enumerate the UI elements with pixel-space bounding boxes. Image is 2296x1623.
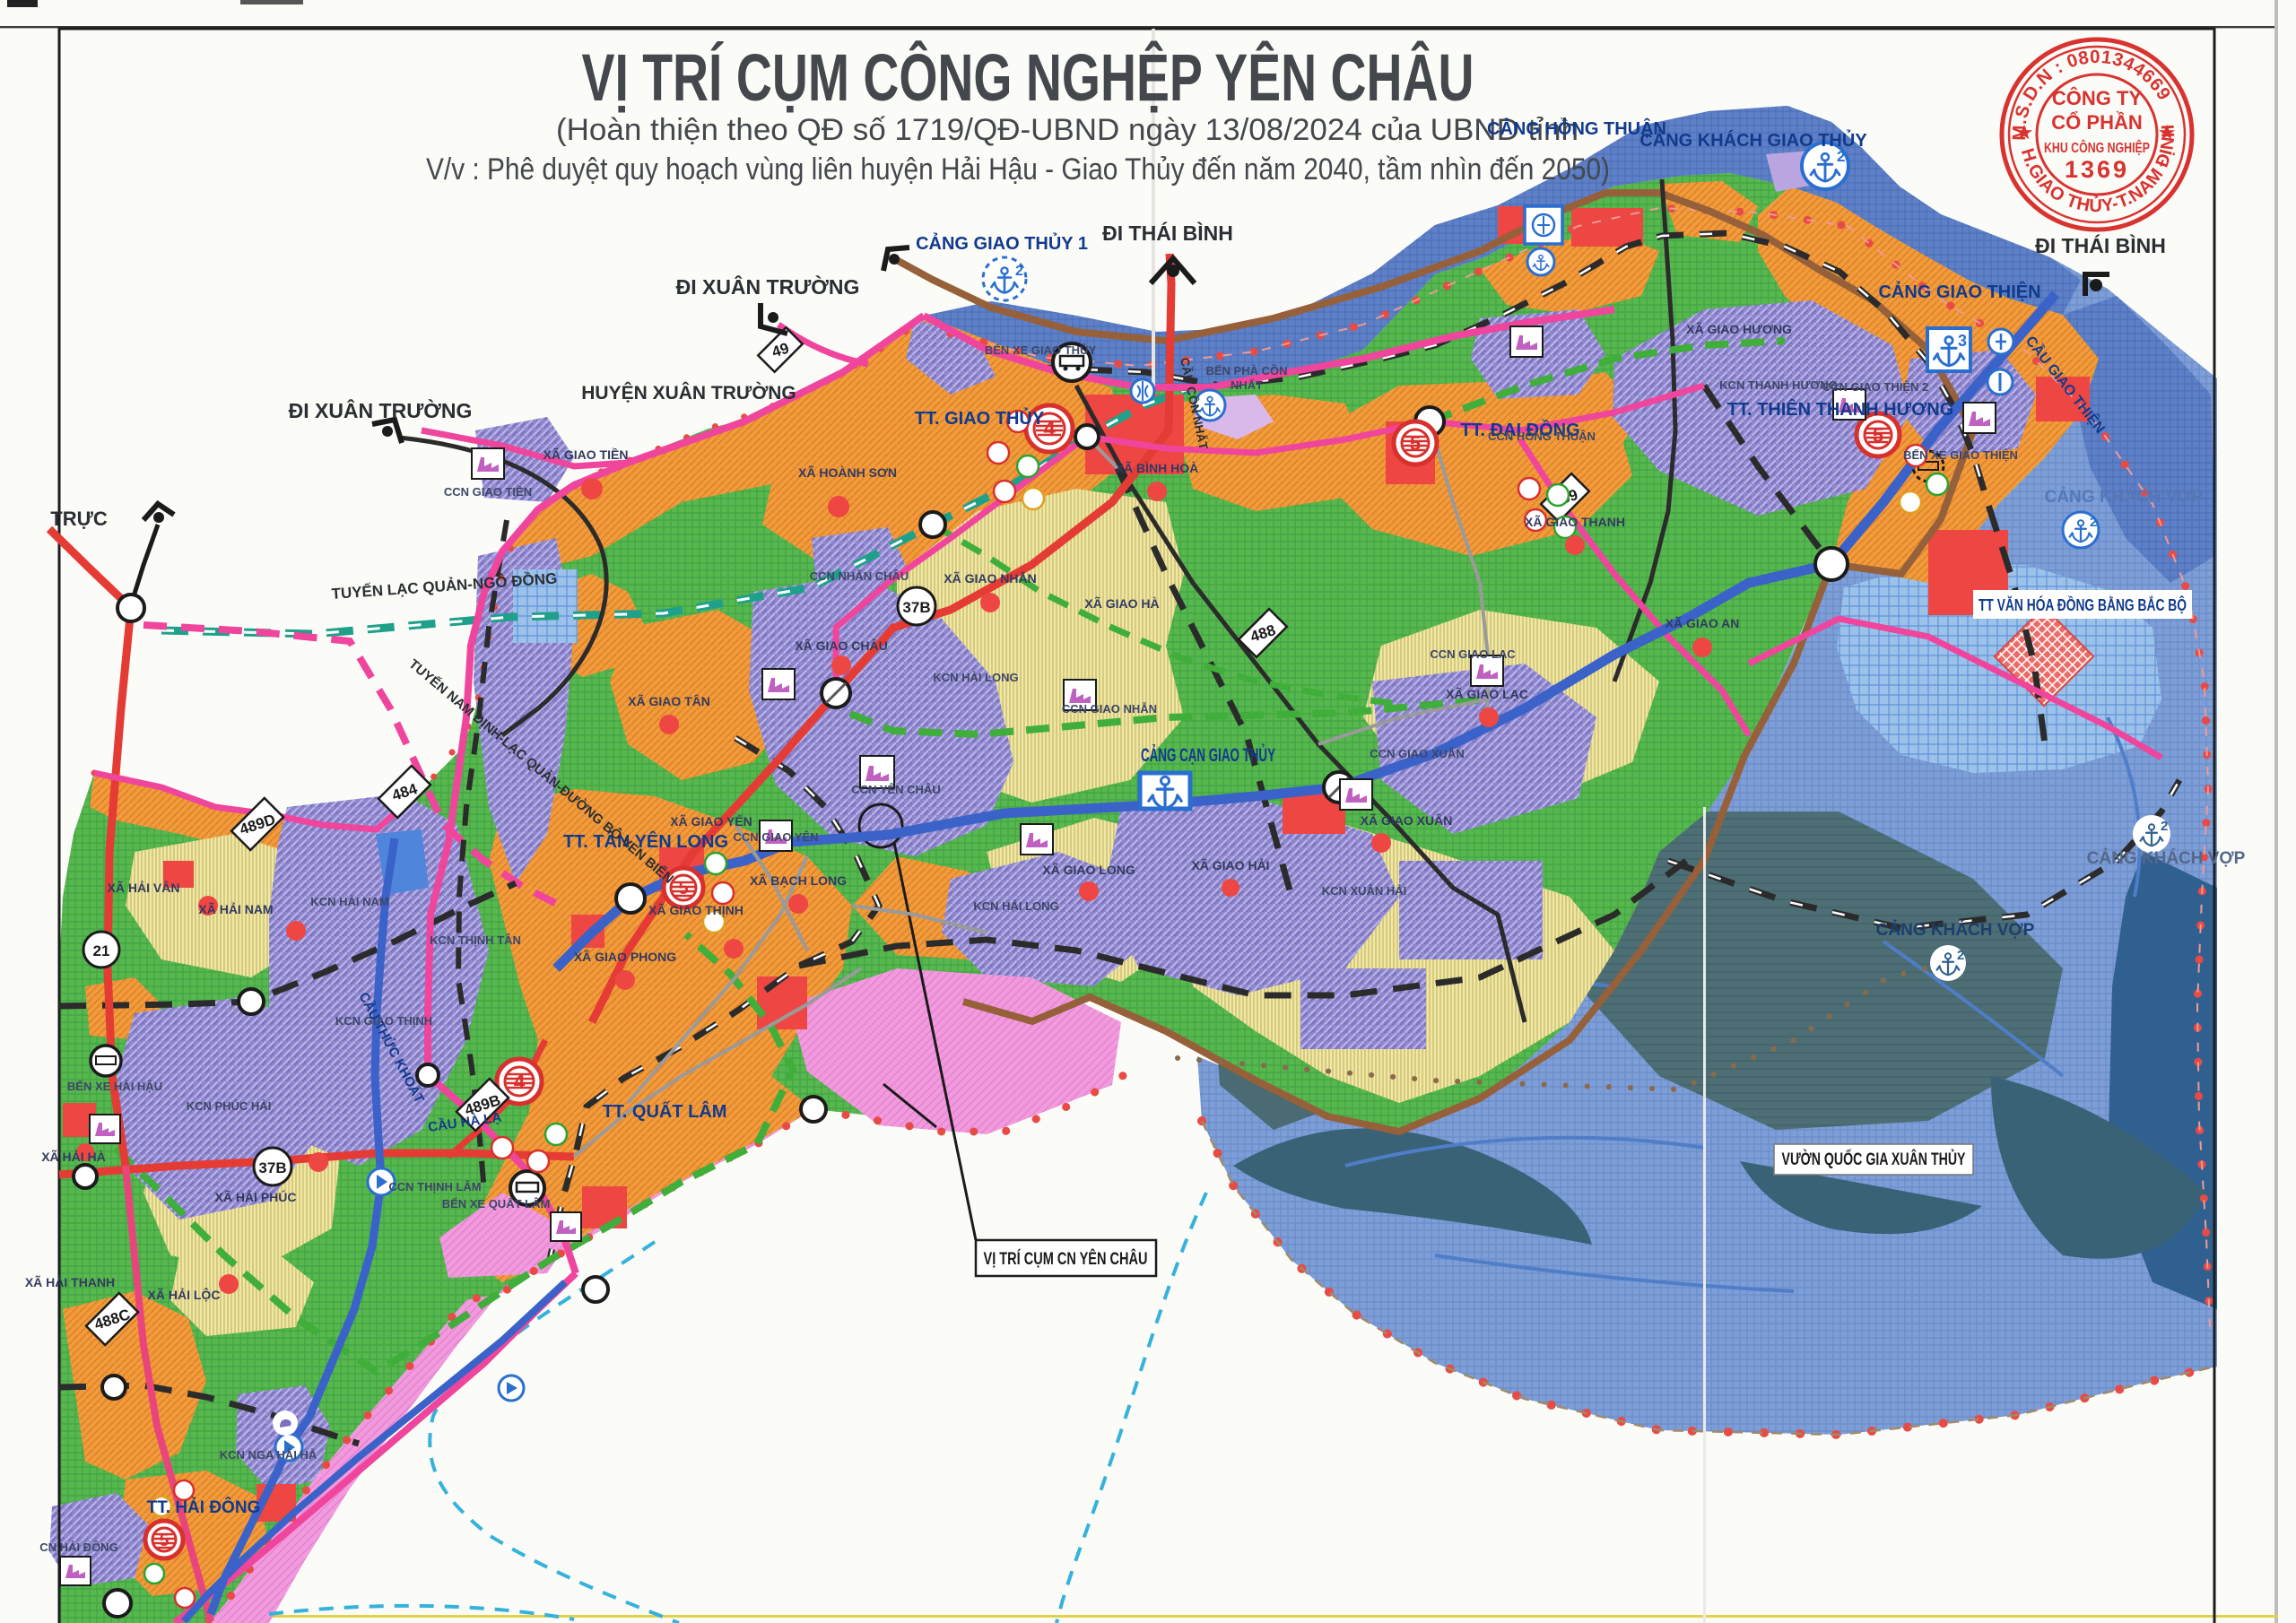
svg-text:CẢNG KHÁCH VỢP: CẢNG KHÁCH VỢP xyxy=(2045,487,2204,507)
svg-text:CN HẢI ĐÔNG: CN HẢI ĐÔNG xyxy=(39,1541,117,1554)
svg-text:CCN GIAO LẠC: CCN GIAO LẠC xyxy=(1430,647,1516,661)
svg-text:NHẤT: NHẤT xyxy=(1231,378,1263,392)
svg-text:VỊ TRÍ CỤM CN YÊN CHÂU: VỊ TRÍ CỤM CN YÊN CHÂU xyxy=(984,1249,1148,1269)
svg-text:XÃ BÌNH HOÀ: XÃ BÌNH HOÀ xyxy=(1116,460,1199,475)
svg-text:HUYỆN XUÂN TRƯỜNG: HUYỆN XUÂN TRƯỜNG xyxy=(581,382,796,404)
svg-text:XÃ GIAO XUÂN: XÃ GIAO XUÂN xyxy=(1361,812,1453,828)
svg-text:TT. THIÊN THANH HƯƠNG: TT. THIÊN THANH HƯƠNG xyxy=(1727,398,1954,420)
svg-text:CẢNG GIAO THIỆN: CẢNG GIAO THIỆN xyxy=(1878,281,2040,302)
svg-text:KCN HẢI LONG: KCN HẢI LONG xyxy=(973,899,1058,913)
svg-text:4: 4 xyxy=(514,1070,526,1093)
svg-text:37B: 37B xyxy=(258,1159,286,1176)
svg-text:BẾN PHÀ CỒN: BẾN PHÀ CỒN xyxy=(1205,364,1287,378)
svg-text:ĐI XUÂN TRƯỜNG: ĐI XUÂN TRƯỜNG xyxy=(289,398,473,422)
svg-text:CCN HỒNG THUẬN: CCN HỒNG THUẬN xyxy=(1488,430,1596,443)
svg-text:CCN GIAO THIỆN 2: CCN GIAO THIỆN 2 xyxy=(1822,380,1928,394)
svg-text:XÃ GIAO THỊNH: XÃ GIAO THỊNH xyxy=(648,902,744,917)
svg-text:XÃ GIAO NHẪN: XÃ GIAO NHẪN xyxy=(944,570,1036,586)
svg-text:CCN GIAO XUÂN: CCN GIAO XUÂN xyxy=(1370,747,1464,760)
svg-text:CCN GIAO TIỀN: CCN GIAO TIỀN xyxy=(444,485,532,499)
svg-text:KCN THANH HƯƠNG: KCN THANH HƯƠNG xyxy=(1719,378,1838,392)
svg-text:XÃ HẢI HÀ: XÃ HẢI HÀ xyxy=(41,1149,106,1164)
svg-text:CCN NHÂN CHÂU: CCN NHÂN CHÂU xyxy=(810,569,909,583)
svg-text:2: 2 xyxy=(1957,948,1964,963)
svg-text:CẢNG CẠN GIAO THỦY: CẢNG CẠN GIAO THỦY xyxy=(1141,744,1275,766)
svg-text:VỊ TRÍ CỤM CÔNG NGHỆP YÊN CHÂU: VỊ TRÍ CỤM CÔNG NGHỆP YÊN CHÂU xyxy=(582,40,1474,115)
svg-text:ĐI THÁI BÌNH: ĐI THÁI BÌNH xyxy=(1102,221,1233,245)
svg-text:XÃ GIAO PHONG: XÃ GIAO PHONG xyxy=(574,949,676,964)
svg-text:TT. QUẤT LÂM: TT. QUẤT LÂM xyxy=(603,1100,727,1122)
svg-text:XÃ HẢI PHÚC: XÃ HẢI PHÚC xyxy=(214,1189,296,1204)
svg-text:CẢNG KHÁCH VỢP: CẢNG KHÁCH VỢP xyxy=(1876,920,2035,940)
svg-text:BẾN XE GIAO THỦY: BẾN XE GIAO THỦY xyxy=(985,343,1097,357)
svg-text:BẾN XE QUẤT LÂM: BẾN XE QUẤT LÂM xyxy=(442,1197,551,1211)
svg-text:XÃ GIAO HẢI: XÃ GIAO HẢI xyxy=(1191,857,1269,872)
svg-text:KCN NGA HẢI HÀ: KCN NGA HẢI HÀ xyxy=(220,1448,317,1462)
svg-text:ĐI XUÂN TRƯỜNG: ĐI XUÂN TRƯỜNG xyxy=(676,274,860,299)
svg-text:TT VĂN HÓA ĐỒNG BẰNG BẮC BỘ: TT VĂN HÓA ĐỒNG BẰNG BẮC BỘ xyxy=(1979,595,2187,614)
svg-text:XÃ GIAO TÂN: XÃ GIAO TÂN xyxy=(628,693,710,708)
svg-text:BẾN XE HẢI HẬU: BẾN XE HẢI HẬU xyxy=(67,1080,162,1093)
svg-text:CẢNG GIAO THỦY 1: CẢNG GIAO THỦY 1 xyxy=(916,232,1088,254)
svg-text:TT. HẢI ĐÔNG: TT. HẢI ĐÔNG xyxy=(147,1497,261,1517)
svg-text:XÃ GIAO TIỀN: XÃ GIAO TIỀN xyxy=(544,447,629,462)
svg-text:XÃ HẢI THANH: XÃ HẢI THANH xyxy=(25,1274,115,1289)
svg-text:CCN GIAO YÊN: CCN GIAO YÊN xyxy=(733,830,818,844)
svg-text:XÃ HẢI LỘC: XÃ HẢI LỘC xyxy=(148,1287,221,1302)
svg-text:CCN YÊN CHÂU: CCN YÊN CHÂU xyxy=(851,783,940,796)
svg-text:CCN THỊNH LÂM: CCN THỊNH LÂM xyxy=(388,1180,481,1193)
svg-text:XÃ HẢI VÂN: XÃ HẢI VÂN xyxy=(108,880,180,895)
svg-text:CCN GIAO NHẪN: CCN GIAO NHẪN xyxy=(1062,702,1157,716)
svg-text:CẢNG KHÁCH GIAO THỦY: CẢNG KHÁCH GIAO THỦY xyxy=(1639,129,1867,151)
svg-text:XÃ BẠCH LONG: XÃ BẠCH LONG xyxy=(750,872,847,888)
svg-text:1369: 1369 xyxy=(2065,156,2129,183)
svg-text:XÃ GIAO HƯƠNG: XÃ GIAO HƯƠNG xyxy=(1686,321,1792,336)
svg-text:XÃ HOÀNH SƠN: XÃ HOÀNH SƠN xyxy=(798,464,897,480)
svg-text:KCN HẢI NAM: KCN HẢI NAM xyxy=(310,895,388,908)
svg-text:XÃ GIAO AN: XÃ GIAO AN xyxy=(1665,615,1740,630)
svg-text:4: 4 xyxy=(1043,417,1056,441)
svg-text:21: 21 xyxy=(93,942,110,959)
svg-text:KCN XUÂN HẢI: KCN XUÂN HẢI xyxy=(1322,884,1407,898)
svg-text:5: 5 xyxy=(1873,424,1883,447)
svg-text:5: 5 xyxy=(160,1532,170,1550)
svg-text:CỔ PHẦN: CỔ PHẦN xyxy=(2051,111,2142,134)
svg-text:XÃ GIAO HÀ: XÃ GIAO HÀ xyxy=(1084,595,1159,611)
svg-text:TT. GIAO THỦY: TT. GIAO THỦY xyxy=(915,407,1045,429)
svg-text:KCN HẢI LONG: KCN HẢI LONG xyxy=(933,671,1018,684)
svg-text:KCN THỊNH TÂN: KCN THỊNH TÂN xyxy=(430,933,521,947)
svg-text:V/v : Phê duyệt quy hoạch vùn: V/v : Phê duyệt quy hoạch vùng liên huyệ… xyxy=(426,152,1610,187)
svg-text:KCN PHÚC HẢI: KCN PHÚC HẢI xyxy=(187,1099,272,1113)
svg-text:XÃ GIAO LẠC: XÃ GIAO LẠC xyxy=(1446,686,1528,701)
svg-text:CÔNG TY: CÔNG TY xyxy=(2052,87,2143,109)
svg-text:XÃ GIAO THANH: XÃ GIAO THANH xyxy=(1525,514,1625,529)
svg-text:XÃ GIAO YẾN: XÃ GIAO YẾN xyxy=(670,813,752,829)
svg-text:XÃ HẢI NAM: XÃ HẢI NAM xyxy=(198,901,273,916)
svg-text:2: 2 xyxy=(2161,819,2168,834)
svg-text:XÃ GIAO CHÂU: XÃ GIAO CHÂU xyxy=(795,638,887,653)
svg-text:3: 3 xyxy=(1958,332,1967,350)
svg-text:KHU CÔNG NGHIỆP: KHU CÔNG NGHIỆP xyxy=(2044,139,2150,156)
svg-text:(Hoàn thiện theo QĐ số 1719/QĐ: (Hoàn thiện theo QĐ số 1719/QĐ-UBND ngày… xyxy=(556,113,1578,147)
svg-text:CẢNG KHÁCH VỢP: CẢNG KHÁCH VỢP xyxy=(2087,848,2246,868)
svg-text:VƯỜN QUỐC GIA XUÂN THỦY: VƯỜN QUỐC GIA XUÂN THỦY xyxy=(1782,1150,1966,1169)
svg-text:2: 2 xyxy=(1015,264,1023,279)
svg-text:TRỰC: TRỰC xyxy=(50,508,108,530)
svg-text:ĐI THÁI BÌNH: ĐI THÁI BÌNH xyxy=(2035,233,2166,257)
svg-text:37B: 37B xyxy=(902,599,930,616)
svg-text:5: 5 xyxy=(1410,432,1421,455)
svg-text:XÃ GIAO LONG: XÃ GIAO LONG xyxy=(1042,862,1135,877)
svg-text:5: 5 xyxy=(678,879,688,898)
svg-text:2: 2 xyxy=(2090,515,2097,530)
svg-text:BẾN XE GIAO THIỆN: BẾN XE GIAO THIỆN xyxy=(1903,448,2018,462)
